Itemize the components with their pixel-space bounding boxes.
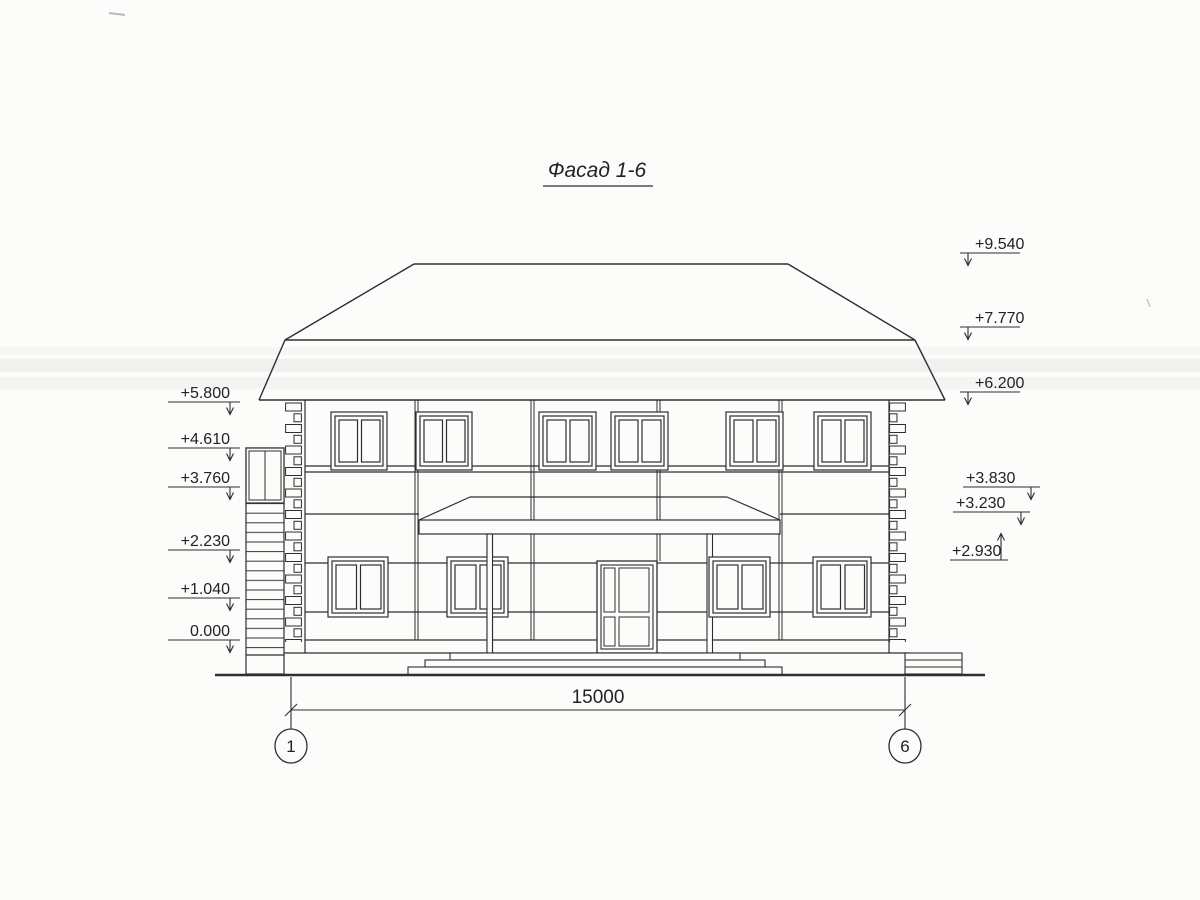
window xyxy=(331,412,387,470)
elevation-mark: 0.000 xyxy=(168,623,240,653)
window xyxy=(814,412,871,470)
elevation-marks-left: +5.800 +4.610 +3.760 +2.230 +1.040 0.000 xyxy=(168,385,240,653)
windows-upper xyxy=(331,412,871,470)
title-block: Фасад 1-6 xyxy=(543,159,653,186)
facade-drawing: +5.800 +4.610 +3.760 +2.230 +1.040 0.000… xyxy=(0,0,1200,900)
canopy-post-left-front xyxy=(487,534,493,653)
steps-center xyxy=(408,653,782,675)
elevation-value: +2.230 xyxy=(181,533,230,550)
elevation-value: +7.770 xyxy=(975,310,1024,327)
axis-label: 6 xyxy=(900,737,909,756)
window xyxy=(416,412,472,470)
elevation-value: +3.760 xyxy=(181,470,230,487)
axis-circle-1: 1 xyxy=(275,729,307,763)
axis-circle-6: 6 xyxy=(889,729,921,763)
scan-artifacts xyxy=(0,13,1200,389)
elevation-value: +3.230 xyxy=(956,495,1005,512)
elevation-value: 0.000 xyxy=(190,623,230,640)
elevation-value: +1.040 xyxy=(181,581,230,598)
window xyxy=(328,557,388,617)
window xyxy=(726,412,783,470)
elevation-value: +9.540 xyxy=(975,236,1024,253)
elevation-mark: +3.760 xyxy=(168,470,240,500)
dimension-line: 15000 xyxy=(285,677,911,729)
elevation-value: +4.610 xyxy=(181,431,230,448)
window xyxy=(447,557,508,617)
window xyxy=(709,557,770,617)
annex-window xyxy=(246,448,284,503)
window xyxy=(813,557,871,617)
entrance-canopy xyxy=(419,497,780,534)
elevation-mark: +9.540 xyxy=(960,236,1024,266)
entrance-door xyxy=(597,561,657,653)
elevation-marks-right: +9.540 +7.770 +6.200 +3.830 +3.230 +2.93… xyxy=(950,236,1040,560)
window xyxy=(539,412,596,470)
axis-label: 1 xyxy=(286,737,295,756)
window xyxy=(611,412,668,470)
elevation-mark: +2.930 xyxy=(950,534,1008,561)
dimension-value: 15000 xyxy=(572,687,625,708)
steps-right xyxy=(905,653,962,674)
elevation-mark: +3.230 xyxy=(953,495,1030,525)
elevation-value: +2.930 xyxy=(952,543,1001,560)
drawing-sheet: +5.800 +4.610 +3.760 +2.230 +1.040 0.000… xyxy=(0,0,1200,900)
page-title: Фасад 1-6 xyxy=(548,159,647,182)
elevation-mark: +2.230 xyxy=(168,533,240,563)
left-annex xyxy=(246,448,284,674)
elevation-value: +3.830 xyxy=(966,470,1015,487)
elevation-mark: +4.610 xyxy=(168,431,240,461)
quoins-right xyxy=(889,402,906,642)
elevation-mark: +7.770 xyxy=(960,310,1024,340)
elevation-mark: +5.800 xyxy=(168,385,240,415)
quoins-left xyxy=(285,402,302,642)
elevation-mark: +1.040 xyxy=(168,581,240,611)
